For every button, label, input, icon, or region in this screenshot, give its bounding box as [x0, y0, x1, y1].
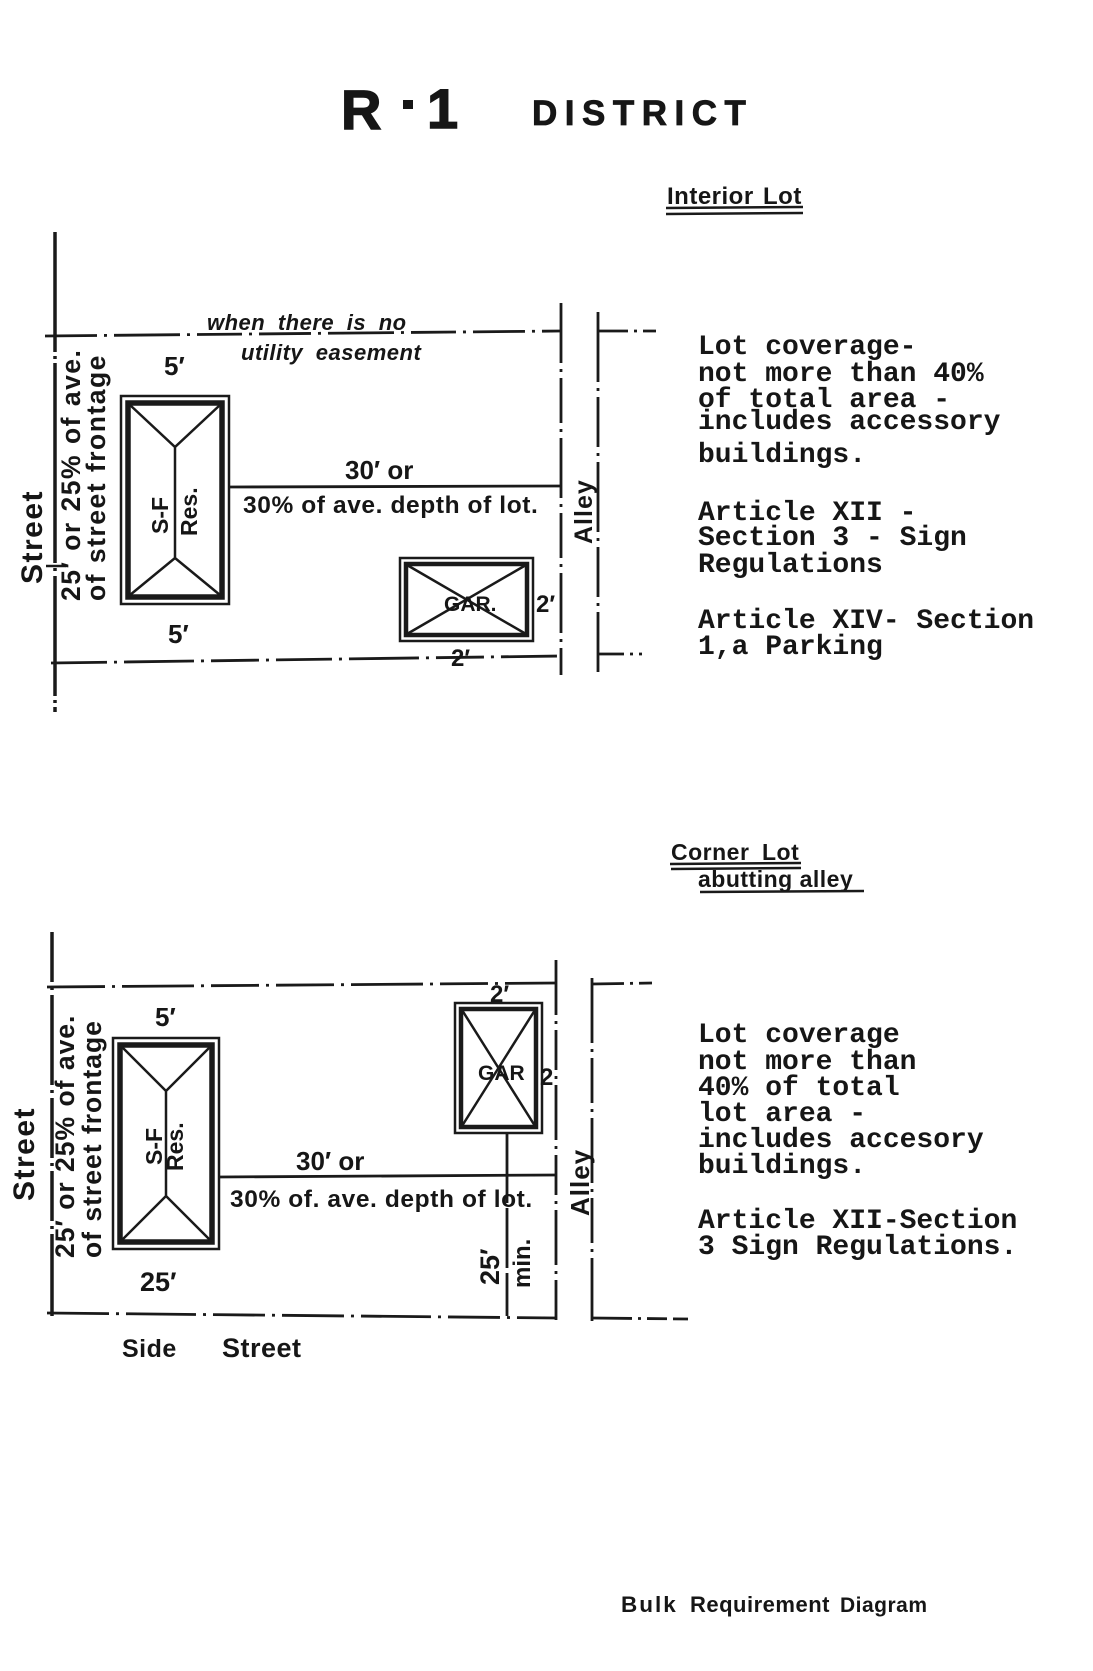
svg-text:5′: 5′	[164, 351, 185, 381]
svg-text:Res.: Res.	[162, 1122, 188, 1171]
svg-text:S-F: S-F	[147, 497, 173, 534]
svg-text:5′: 5′	[155, 1002, 176, 1032]
svg-text:Diagram: Diagram	[840, 1594, 928, 1617]
svg-text:2′: 2′	[490, 981, 509, 1008]
svg-text:Alley: Alley	[570, 479, 598, 544]
svg-text:Street: Street	[222, 1333, 302, 1363]
svg-text:1,a Parking: 1,a Parking	[698, 632, 883, 663]
svg-text:2′: 2′	[451, 645, 470, 672]
svg-text:Alley: Alley	[565, 1149, 595, 1216]
svg-text:of street frontage: of street frontage	[77, 1020, 107, 1258]
svg-text:of street frontage: of street frontage	[81, 354, 111, 601]
svg-text:25′: 25′	[140, 1267, 177, 1297]
svg-text:abutting alley: abutting alley	[698, 866, 853, 892]
svg-text:Street: Street	[8, 1107, 41, 1201]
svg-text:Res.: Res.	[176, 487, 202, 536]
svg-text:Bulk: Bulk	[621, 1592, 678, 1617]
svg-text:30% of ave. depth of lot.: 30% of ave. depth of lot.	[243, 492, 538, 519]
svg-text:utility easement: utility easement	[241, 340, 422, 365]
svg-text:Interior: Interior	[667, 183, 754, 210]
svg-text:min.: min.	[509, 1239, 536, 1288]
svg-text:DISTRICT: DISTRICT	[532, 94, 753, 133]
svg-text:30% of. ave. depth of lot.: 30% of. ave. depth of lot.	[230, 1186, 533, 1213]
svg-text:GAR: GAR	[478, 1062, 525, 1085]
svg-text:when there is no: when there is no	[207, 310, 407, 335]
svg-text:Street: Street	[16, 490, 49, 584]
svg-text:Side: Side	[122, 1335, 177, 1363]
svg-text:30′ or: 30′ or	[296, 1146, 364, 1176]
svg-text:Regulations: Regulations	[698, 550, 883, 581]
svg-text:25′ or 25% of ave.: 25′ or 25% of ave.	[50, 1015, 80, 1258]
svg-text:buildings.: buildings.	[698, 1151, 866, 1182]
svg-text:Requirement: Requirement	[690, 1592, 830, 1617]
svg-text:3 Sign Regulations.: 3 Sign Regulations.	[698, 1232, 1017, 1263]
svg-text:2′: 2′	[536, 591, 555, 618]
svg-text:5′: 5′	[168, 619, 189, 649]
svg-text:1: 1	[427, 77, 458, 140]
svg-text:30′ or: 30′ or	[345, 455, 413, 485]
svg-text:Corner: Corner	[671, 839, 749, 865]
svg-text:buildings.: buildings.	[698, 440, 866, 471]
svg-text:Lot: Lot	[762, 839, 799, 865]
svg-text:GAR.: GAR.	[444, 593, 497, 616]
svg-text:25′: 25′	[475, 1248, 505, 1285]
svg-text:includes accessory: includes accessory	[698, 407, 1001, 438]
svg-text:R: R	[341, 78, 381, 141]
svg-text:2: 2	[540, 1064, 553, 1091]
